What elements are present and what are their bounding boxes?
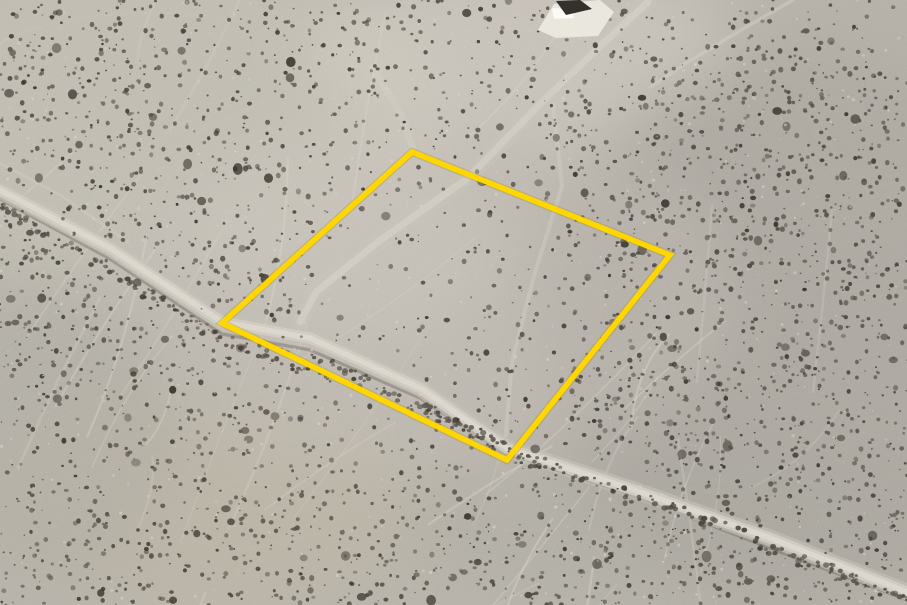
grain-overlay	[0, 0, 907, 605]
satellite-map-view[interactable]	[0, 0, 907, 605]
satellite-svg	[0, 0, 907, 605]
